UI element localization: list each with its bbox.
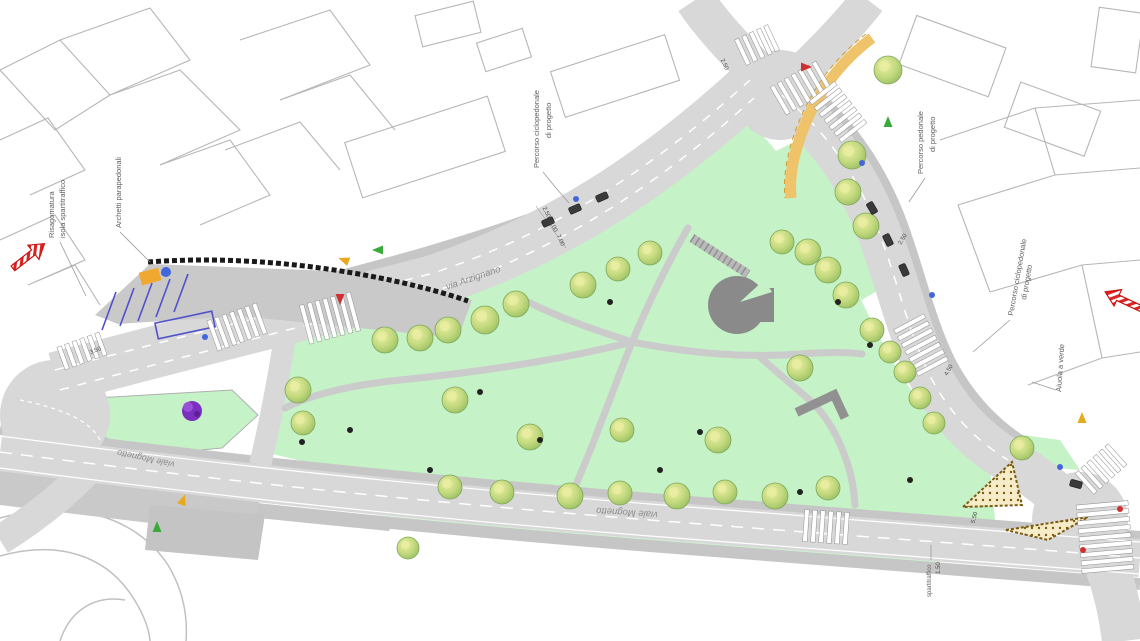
point-marker-icon: [427, 467, 433, 473]
dimension-label: 1.50: [936, 562, 942, 574]
site-plan-map: Risagomaturaisola spartitrafficoArchetti…: [0, 0, 1140, 641]
point-marker-icon: [859, 160, 865, 166]
annotation-label: spartitraffico: [927, 564, 933, 597]
tree-icon: [835, 179, 861, 205]
point-marker-icon: [867, 342, 873, 348]
point-marker-icon: [835, 299, 841, 305]
annotation-label: Percorso pedonale: [916, 111, 925, 174]
tree-icon: [285, 377, 311, 403]
point-marker-icon: [161, 270, 167, 276]
tree-icon: [705, 427, 731, 453]
annotation-label: Archetti parapedonali: [114, 157, 123, 228]
tree-icon: [397, 537, 419, 559]
site-plan-page: Risagomaturaisola spartitrafficoArchetti…: [0, 0, 1140, 641]
tree-icon: [879, 341, 901, 363]
annotation-label: Percorso ciclopedonale: [532, 90, 541, 168]
tree-icon: [853, 213, 879, 239]
tree-icon: [557, 483, 583, 509]
annotation-label: isola spartitraffico: [58, 180, 67, 238]
tree-icon: [795, 239, 821, 265]
tree-icon: [664, 483, 690, 509]
point-marker-icon: [607, 299, 613, 305]
purple-bush: [182, 401, 202, 421]
tree-icon: [1010, 436, 1034, 460]
point-marker-icon: [697, 429, 703, 435]
tree-icon: [438, 475, 462, 499]
tree-icon: [291, 411, 315, 435]
tree-icon: [570, 272, 596, 298]
point-marker-icon: [1057, 464, 1063, 470]
tree-icon: [816, 476, 840, 500]
point-marker-icon: [477, 389, 483, 395]
tree-icon: [471, 306, 499, 334]
annotation-label: di progetto: [928, 117, 937, 152]
tree-icon: [762, 483, 788, 509]
tree-icon: [503, 291, 529, 317]
point-marker-icon: [537, 437, 543, 443]
tree-icon: [815, 257, 841, 283]
annotation-label: di progetto: [544, 103, 553, 138]
point-marker-icon: [1117, 506, 1123, 512]
point-marker-icon: [657, 467, 663, 473]
tree-icon: [608, 481, 632, 505]
tree-icon: [442, 387, 468, 413]
point-marker-icon: [299, 439, 305, 445]
point-marker-icon: [573, 196, 579, 202]
tree-icon: [517, 424, 543, 450]
tree-icon: [923, 412, 945, 434]
tree-icon: [909, 387, 931, 409]
point-marker-icon: [929, 292, 935, 298]
annotation-label: Risagomatura: [47, 190, 56, 238]
tree-icon: [407, 325, 433, 351]
tree-icon: [894, 361, 916, 383]
tree-icon: [770, 230, 794, 254]
tree-icon: [874, 56, 902, 84]
point-marker-icon: [797, 489, 803, 495]
point-marker-icon: [347, 427, 353, 433]
tree-icon: [638, 241, 662, 265]
point-marker-icon: [202, 334, 208, 340]
tree-icon: [490, 480, 514, 504]
tree-icon: [713, 480, 737, 504]
tree-icon: [610, 418, 634, 442]
tree-icon: [787, 355, 813, 381]
tree-icon: [372, 327, 398, 353]
point-marker-icon: [907, 477, 913, 483]
tree-icon: [435, 317, 461, 343]
tree-icon: [606, 257, 630, 281]
point-marker-icon: [1080, 547, 1086, 553]
tree-icon: [860, 318, 884, 342]
